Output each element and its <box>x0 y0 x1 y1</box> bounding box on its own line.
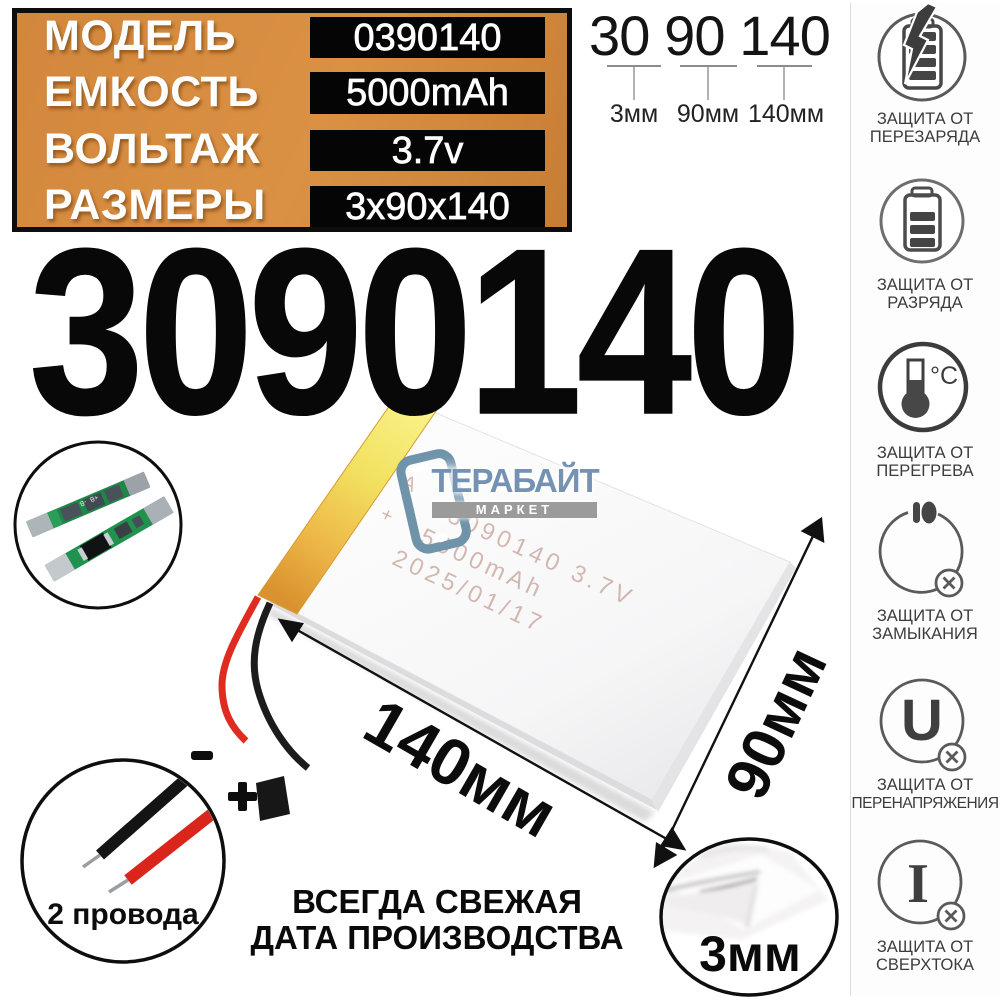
svg-text:°C: °C <box>930 362 958 390</box>
svg-text:U: U <box>901 688 943 753</box>
svg-text:I: I <box>907 853 929 915</box>
